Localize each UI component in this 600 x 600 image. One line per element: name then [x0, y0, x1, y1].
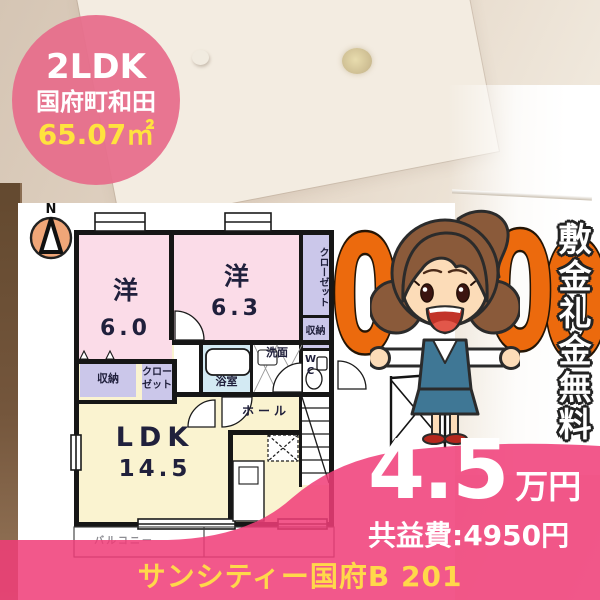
washroom-label: 洗面 [255, 346, 299, 360]
common-fee: 共益費:4950円 [368, 514, 600, 554]
bedroom2-size: 6.3 [174, 295, 299, 323]
sliding-door-marks [80, 351, 114, 359]
mascot-skirt [412, 389, 478, 414]
mascot-girl [370, 207, 520, 453]
footer-bar: サンシティー国府B 201 [0, 550, 600, 600]
badge-location: 国府町和田 [36, 87, 156, 118]
bedroom1-label: 洋 [79, 275, 172, 306]
property-name: サンシティー国府B 201 [138, 555, 463, 595]
rent-amount: 4.5 [368, 430, 507, 512]
bedroom1-size: 6.0 [79, 315, 172, 343]
closet-left-label: クローゼット [141, 367, 173, 392]
mascot-hand-right [501, 348, 521, 369]
compass-icon [28, 216, 74, 260]
badge-floor-area: 65.07㎡ [38, 118, 155, 152]
storage-left-label: 収納 [80, 372, 136, 386]
bathtub-symbol [206, 349, 250, 375]
property-badge: 2LDK 国府町和田 65.07㎡ [12, 15, 180, 185]
wc-label: WC [304, 354, 317, 378]
compass: N [26, 203, 76, 261]
hall-label: ホール [232, 404, 300, 419]
mascot-hand-left [370, 348, 390, 369]
bedroom2-label: 洋 [174, 261, 299, 292]
compass-north-label: N [26, 203, 76, 216]
ceiling-light [342, 48, 372, 74]
price-panel: 4.5 万円 共益費:4950円 [368, 430, 600, 554]
ad-canvas: 洋 6.0 洋 6.3 クローゼット 収納 WC 浴室 洗面 収納 クローゼット… [0, 0, 600, 600]
bath-label: 浴室 [203, 375, 250, 389]
badge-type: 2LDK [46, 48, 146, 87]
smoke-detector [192, 50, 209, 65]
rent-unit: 万円 [515, 460, 581, 508]
no-deposit-banner: 敷金礼金無料 [549, 222, 595, 462]
